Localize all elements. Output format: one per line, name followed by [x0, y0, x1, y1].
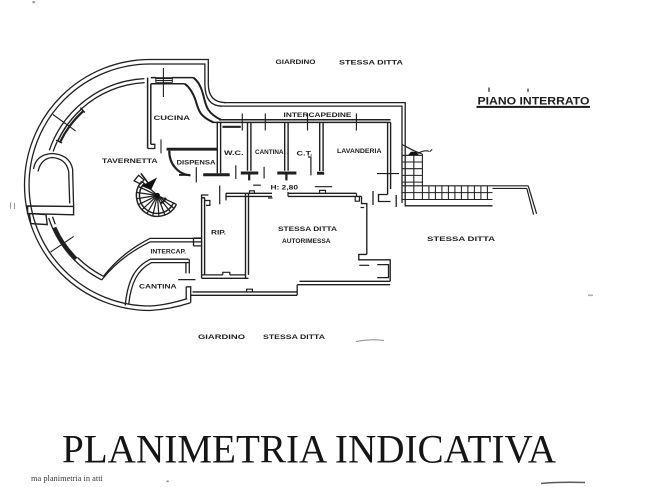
svg-text:GIARDINO: GIARDINO	[198, 334, 245, 341]
svg-text:INTERCAP.: INTERCAP.	[151, 249, 187, 256]
svg-text:C.T.: C.T.	[297, 151, 313, 158]
svg-text:TAVERNETTA: TAVERNETTA	[102, 158, 158, 165]
svg-text:PLANIMETRIA INDICATIVA: PLANIMETRIA INDICATIVA	[62, 427, 556, 472]
svg-text:INTERCAPEDINE: INTERCAPEDINE	[284, 112, 352, 119]
svg-text:W.C.: W.C.	[224, 150, 244, 157]
svg-text:CANTINA: CANTINA	[139, 284, 177, 291]
svg-text:STESSA DITTA: STESSA DITTA	[263, 334, 326, 341]
svg-text:CANTINA: CANTINA	[255, 149, 284, 156]
svg-text:ma planimetria in atti: ma planimetria in atti	[31, 474, 104, 483]
svg-text:H: 2,80: H: 2,80	[271, 185, 299, 192]
svg-text:PIANO INTERRATO: PIANO INTERRATO	[478, 96, 590, 108]
svg-text:RIP.: RIP.	[211, 229, 226, 236]
svg-text:STESSA DITTA: STESSA DITTA	[339, 59, 404, 66]
svg-text:STESSA DITTA: STESSA DITTA	[278, 226, 338, 233]
svg-text:AUTORIMESSA: AUTORIMESSA	[282, 238, 331, 245]
svg-text:LAVANDERIA: LAVANDERIA	[337, 148, 382, 155]
svg-text:CUCINA: CUCINA	[154, 115, 191, 122]
svg-text:DISPENSA: DISPENSA	[177, 159, 217, 166]
svg-text:GIARDINO: GIARDINO	[276, 59, 316, 66]
svg-text:STESSA DITTA: STESSA DITTA	[427, 236, 496, 243]
